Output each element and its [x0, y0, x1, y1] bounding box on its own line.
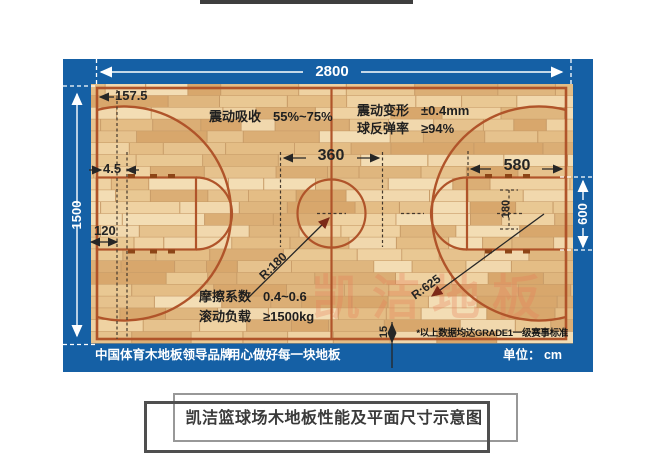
- spec-friction-coefficient: 摩擦系数 0.4~0.6: [199, 290, 307, 303]
- dim-court-length: 2800: [302, 64, 362, 79]
- dim-board-to-hoop: 180: [501, 191, 513, 227]
- spec-label: 震动变形: [357, 104, 409, 117]
- footer-unit: 单位： cm: [503, 349, 562, 362]
- spec-value: ≥1500kg: [263, 310, 314, 323]
- dim-baseline-to-hoop: 157.5: [115, 89, 148, 102]
- dim-key-width: 600: [576, 194, 590, 234]
- spec-value: ≥94%: [421, 122, 454, 135]
- dim-center-circle: 360: [301, 148, 361, 164]
- dim-hoop-offset: 120: [94, 224, 116, 237]
- spec-vibration-deformation: 震动变形 ±0.4mm: [357, 104, 469, 117]
- dim-edge-gap: 15: [379, 317, 391, 347]
- spec-value: ±0.4mm: [421, 104, 469, 117]
- footer-brand: 中国体育木地板领导品牌: [95, 349, 233, 362]
- dim-key-length: 580: [487, 158, 547, 174]
- spec-ball-rebound: 球反弹率 ≥94%: [357, 122, 454, 135]
- footer-slogan: 用心做好每一块地板: [228, 349, 341, 362]
- spec-label: 震动吸收: [209, 110, 261, 123]
- caption-box-outer: [144, 401, 490, 453]
- dim-line-gap: 4.5: [103, 162, 121, 175]
- grade-note: *以上数据均达GRADE1一级赛事标准: [400, 329, 568, 339]
- caption-title: 凯洁篮球场木地板性能及平面尺寸示意图: [179, 411, 489, 427]
- spec-label: 球反弹率: [357, 122, 409, 135]
- spec-label: 滚动负载: [199, 310, 251, 323]
- spec-value: 0.4~0.6: [263, 290, 307, 303]
- spec-rolling-load: 滚动负载 ≥1500kg: [199, 310, 314, 323]
- spec-shock-absorption: 震动吸收 55%~75%: [209, 110, 333, 123]
- spec-label: 摩擦系数: [199, 290, 251, 303]
- spec-value: 55%~75%: [273, 110, 333, 123]
- dim-court-width: 1500: [70, 195, 84, 235]
- product-diagram-page: 凯洁地板: [0, 0, 665, 468]
